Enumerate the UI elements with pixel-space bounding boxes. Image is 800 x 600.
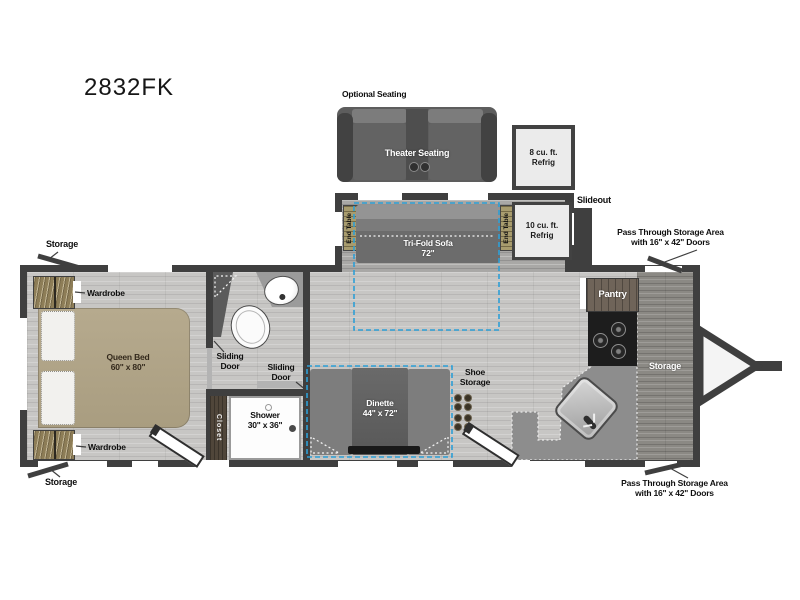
wall-right: [693, 265, 700, 467]
knob-icon: [465, 395, 471, 401]
shower-label: Shower 30" x 36": [229, 410, 301, 430]
window-bottom-1: [38, 461, 107, 467]
sofa-back-cushion: [356, 205, 500, 219]
window-top-kitchen: [645, 266, 682, 272]
burner-icon: [611, 322, 626, 337]
faucet-icon: [279, 293, 286, 300]
wardrobe-bottom-label: Wardrobe: [88, 442, 126, 452]
wardrobe-divider: [54, 431, 56, 459]
shoe-storage-knobs: [455, 395, 472, 410]
slideout-tag: Slideout: [577, 195, 611, 206]
closet: Closet: [210, 396, 227, 460]
queen-bed-label: Queen Bed 60" x 80": [88, 352, 168, 372]
wardrobe-bottom-opening: [73, 434, 81, 455]
window-top-bedroom: [108, 265, 172, 272]
wall-top-left: [20, 265, 342, 272]
storage-bottom-label: Storage: [38, 477, 84, 488]
sofa-seat-cushion: [356, 219, 500, 231]
pass-through-top-label: Pass Through Storage Area with 16" x 42"…: [608, 227, 733, 247]
bath-bottom-wall: [206, 389, 310, 396]
front-storage-label: Storage: [643, 361, 687, 372]
floorplan-2832fk: 2832FK Optional Seating: [0, 0, 800, 600]
wardrobe-top-label: Wardrobe: [87, 288, 125, 298]
entry-door-opening-1: [197, 460, 229, 467]
refrig8-label: 8 cu. ft. Refrig: [529, 148, 557, 168]
bedroom-bath-wall-upper: [206, 272, 213, 348]
pillow: [41, 371, 75, 425]
pass-through-bottom-label: Pass Through Storage Area with 16" x 42"…: [612, 478, 737, 498]
theater-seating-label: Theater Seating: [337, 148, 497, 159]
window-slideout-2: [448, 193, 488, 200]
knob-icon: [455, 395, 461, 401]
window-slideout-left: [335, 212, 342, 246]
refrigerator-10cuft: 10 cu. ft. Refrig: [512, 202, 572, 260]
toilet-seat: [231, 306, 269, 347]
pillow: [41, 311, 75, 361]
knob-icon: [465, 415, 471, 421]
end-table-left-label: End Table: [347, 213, 354, 244]
wardrobe-bottom: [33, 430, 75, 460]
wardrobe-top: [33, 276, 75, 309]
theater-backrest-right: [428, 109, 483, 123]
storage-top-label: Storage: [40, 239, 84, 250]
wardrobe-divider: [54, 277, 56, 308]
optional-seating-heading: Optional Seating: [342, 89, 406, 99]
window-bottom-3: [338, 461, 397, 467]
burner-icon: [593, 333, 608, 348]
cupholder-icon: [409, 162, 419, 172]
end-table-right-label: End Table: [504, 213, 511, 244]
theater-seating: Theater Seating: [337, 107, 497, 182]
shoe-storage-label: Shoe Storage: [452, 367, 498, 387]
pantry-label: Pantry: [598, 289, 626, 300]
wardrobe-top-opening: [73, 281, 81, 303]
refrig10-label: 10 cu. ft. Refrig: [526, 221, 558, 241]
burner-icon: [611, 344, 626, 359]
dinette-pedestal: [348, 446, 420, 454]
cupholder-icon: [420, 162, 430, 172]
model-title: 2832FK: [84, 76, 174, 100]
window-bottom-4: [418, 461, 453, 467]
knob-icon: [455, 404, 461, 410]
sliding-door-right-label: Sliding Door: [263, 362, 299, 382]
trailer-nose: [700, 330, 757, 402]
window-bottom-2: [132, 461, 158, 467]
slideout-corner-pillar: [574, 208, 592, 266]
knob-icon: [465, 404, 471, 410]
knob-icon: [455, 415, 461, 421]
faucet-handle-icon: [593, 414, 595, 423]
knob-icon: [455, 424, 461, 430]
dinette-bench-left: [310, 369, 353, 455]
refrigerator-8cuft: 8 cu. ft. Refrig: [512, 125, 575, 190]
window-bottom-6: [645, 461, 677, 467]
closet-label: Closet: [215, 414, 222, 441]
stove-cooktop: [588, 312, 637, 366]
window-bottom-5: [530, 461, 585, 467]
dinette-label: Dinette 44" x 72": [350, 398, 410, 418]
faucet-icon: [582, 414, 597, 430]
pantry: Pantry: [586, 278, 639, 312]
window-left-wall: [20, 318, 27, 410]
bath-right-wall: [303, 272, 310, 460]
tri-fold-sofa-label: Tri-Fold Sofa 72": [384, 238, 472, 258]
sliding-door-left-label: Sliding Door: [212, 351, 248, 371]
dinette-bench-right: [407, 369, 450, 455]
theater-backrest-left: [352, 109, 407, 123]
window-slideout-1: [358, 193, 402, 200]
